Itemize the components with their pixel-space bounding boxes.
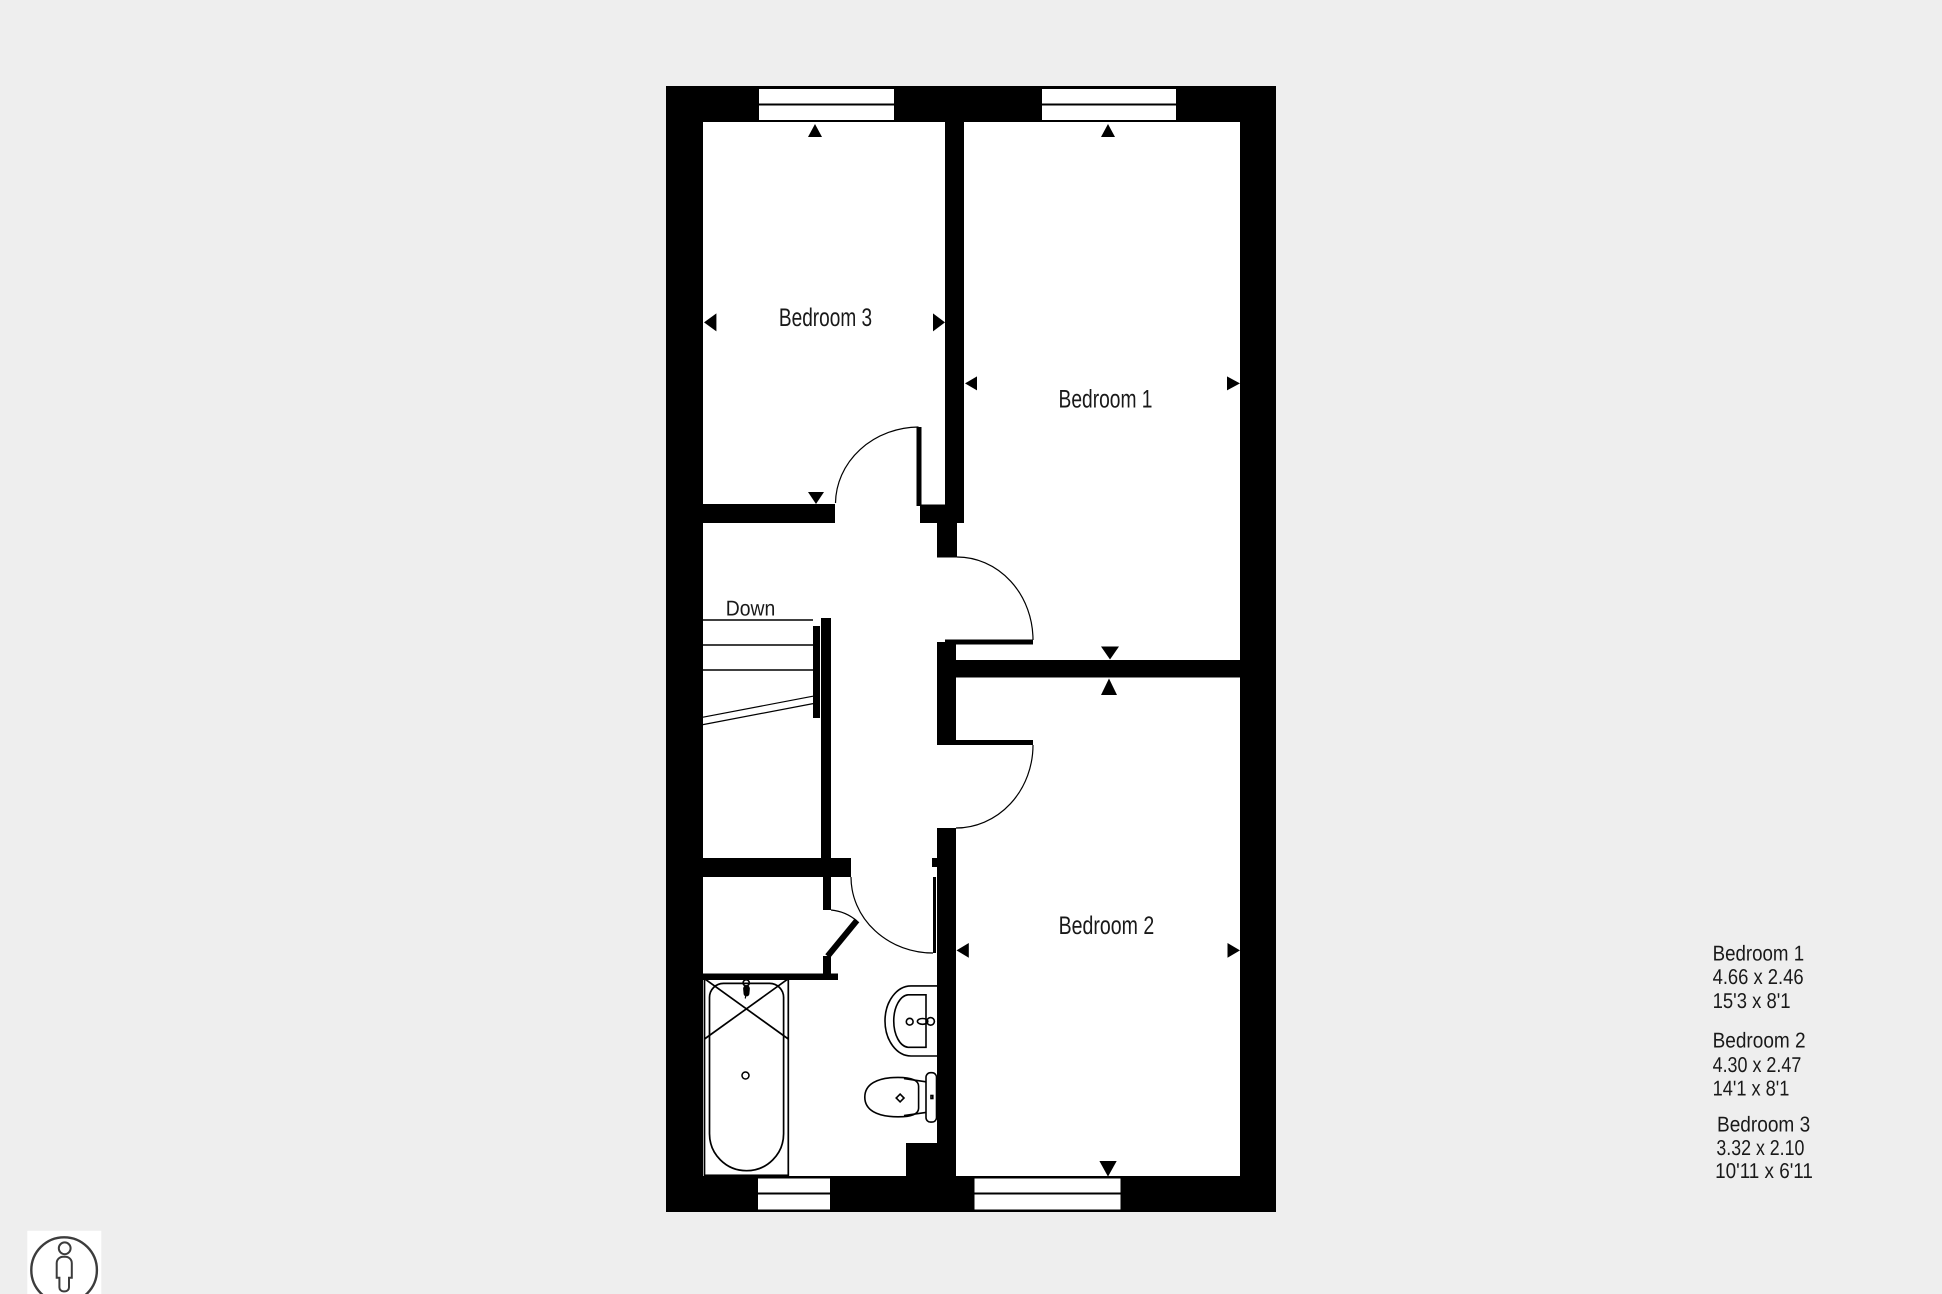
svg-text:Down: Down <box>726 597 776 621</box>
svg-text:Bedroom 1: Bedroom 1 <box>1713 942 1805 966</box>
svg-text:3.32 x 2.10: 3.32 x 2.10 <box>1716 1136 1804 1160</box>
svg-text:Bedroom 1: Bedroom 1 <box>1059 386 1153 414</box>
svg-text:4.66 x 2.46: 4.66 x 2.46 <box>1713 965 1804 989</box>
svg-text:Bedroom 2: Bedroom 2 <box>1713 1029 1806 1053</box>
svg-text:4.30 x 2.47: 4.30 x 2.47 <box>1713 1053 1802 1077</box>
svg-text:15'3 x 8'1: 15'3 x 8'1 <box>1713 989 1791 1013</box>
svg-text:Bedroom 2: Bedroom 2 <box>1059 912 1155 940</box>
svg-text:10'11 x 6'11: 10'11 x 6'11 <box>1715 1159 1813 1183</box>
svg-text:14'1 x 8'1: 14'1 x 8'1 <box>1713 1077 1790 1101</box>
svg-text:Bedroom 3: Bedroom 3 <box>779 304 872 332</box>
svg-text:Bedroom 3: Bedroom 3 <box>1717 1112 1810 1136</box>
